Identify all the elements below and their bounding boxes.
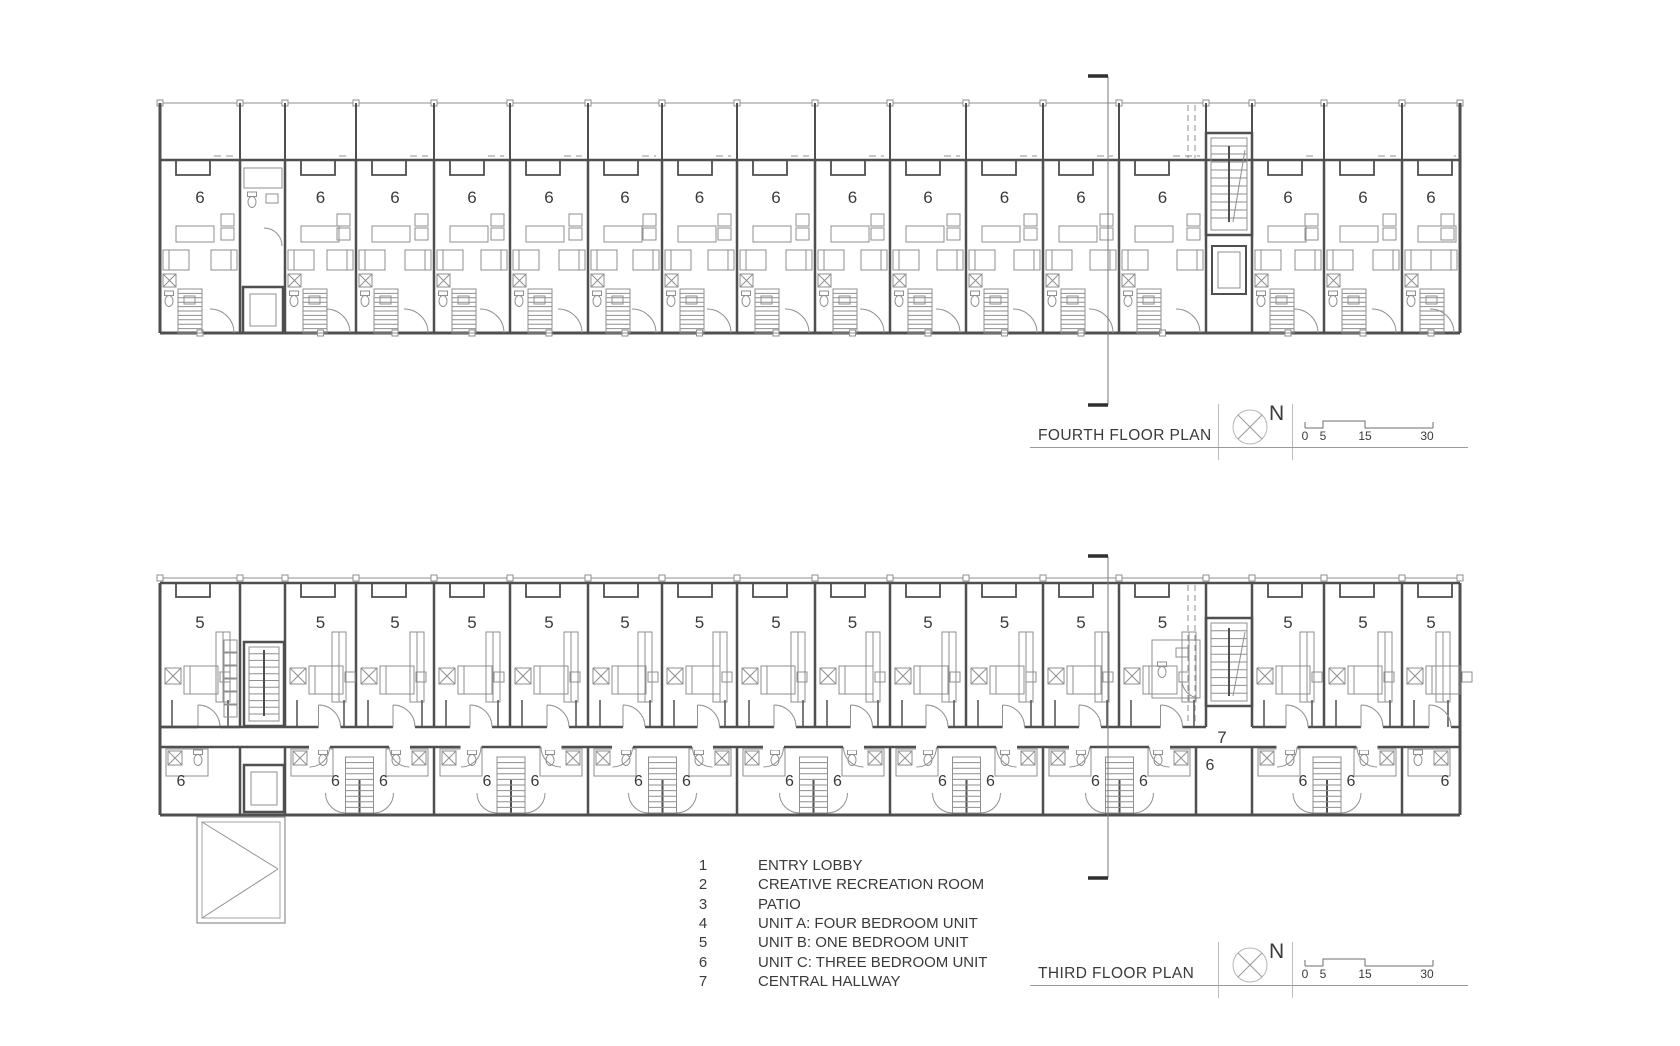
legend-number: 5 [694, 934, 712, 951]
legend-label: CENTRAL HALLWAY [758, 973, 901, 990]
unit-label: 5 [1426, 613, 1435, 632]
unit-label: 6 [331, 773, 340, 790]
unit-label: 6 [390, 188, 399, 207]
unit-label: 6 [1206, 757, 1215, 774]
unit-label: 5 [467, 613, 476, 632]
unit-label: 5 [771, 613, 780, 632]
legend-label: UNIT B: ONE BEDROOM UNIT [758, 934, 969, 951]
unit-label: 6 [1158, 188, 1167, 207]
scale-tick: 15 [1355, 429, 1375, 443]
north-label: N [1269, 402, 1284, 426]
unit-label: 5 [1158, 613, 1167, 632]
unit-label: 5 [1283, 613, 1292, 632]
unit-label: 5 [923, 613, 932, 632]
unit-label: 6 [833, 773, 842, 790]
legend-number: 2 [694, 876, 712, 893]
north-label: N [1269, 940, 1284, 964]
unit-label: 6 [986, 773, 995, 790]
unit-label: 6 [771, 188, 780, 207]
unit-label: 5 [1000, 613, 1009, 632]
scale-tick: 30 [1417, 967, 1437, 981]
unit-label: 5 [195, 613, 204, 632]
unit-label: 6 [1358, 188, 1367, 207]
legend-number: 3 [694, 896, 712, 913]
unit-label: 6 [1441, 773, 1450, 790]
unit-label: 6 [938, 773, 947, 790]
third-floor-title: THIRD FLOOR PLAN [1038, 965, 1194, 983]
drawing-sheet: 6666666666666666555555555555555576666666… [0, 0, 1680, 1046]
unit-label: 5 [695, 613, 704, 632]
unit-label: 6 [620, 188, 629, 207]
titleblock-divider [1292, 404, 1293, 460]
hallway-label: 7 [1217, 728, 1226, 747]
unit-label: 6 [923, 188, 932, 207]
unit-label: 6 [531, 773, 540, 790]
titleblock-divider [1292, 942, 1293, 998]
unit-label: 5 [1358, 613, 1367, 632]
legend-number: 6 [694, 954, 712, 971]
unit-label: 6 [379, 773, 388, 790]
unit-label: 6 [1139, 773, 1148, 790]
scale-tick: 0 [1295, 967, 1315, 981]
unit-label: 6 [1076, 188, 1085, 207]
scale-bar [1300, 416, 1440, 430]
titleblock-divider [1218, 404, 1219, 460]
legend-number: 4 [694, 915, 712, 932]
unit-label: 6 [1299, 773, 1308, 790]
unit-label: 5 [1076, 613, 1085, 632]
unit-label: 5 [316, 613, 325, 632]
fourth-floor-title: FOURTH FLOOR PLAN [1038, 427, 1212, 445]
scale-tick: 30 [1417, 429, 1437, 443]
legend-label: CREATIVE RECREATION ROOM [758, 876, 984, 893]
titleblock-divider [1218, 942, 1219, 998]
unit-label: 6 [695, 188, 704, 207]
scale-bar [1300, 954, 1440, 968]
scale-tick: 0 [1295, 429, 1315, 443]
fourth-floor-plan-drawing: 6666666666666666 [157, 76, 1463, 405]
legend-label: ENTRY LOBBY [758, 857, 863, 874]
unit-label: 6 [634, 773, 643, 790]
legend-label: PATIO [758, 896, 801, 913]
unit-label: 6 [848, 188, 857, 207]
unit-label: 5 [620, 613, 629, 632]
legend-label: UNIT A: FOUR BEDROOM UNIT [758, 915, 978, 932]
legend-number: 7 [694, 973, 712, 990]
scale-tick: 15 [1355, 967, 1375, 981]
unit-label: 6 [1091, 773, 1100, 790]
unit-label: 6 [177, 773, 186, 790]
unit-label: 6 [682, 773, 691, 790]
unit-label: 6 [483, 773, 492, 790]
unit-label: 5 [390, 613, 399, 632]
scale-tick: 5 [1313, 967, 1333, 981]
unit-label: 6 [785, 773, 794, 790]
unit-label: 5 [544, 613, 553, 632]
legend-label: UNIT C: THREE BEDROOM UNIT [758, 954, 987, 971]
unit-label: 6 [195, 188, 204, 207]
scale-tick: 5 [1313, 429, 1333, 443]
legend-number: 1 [694, 857, 712, 874]
unit-label: 6 [1000, 188, 1009, 207]
unit-label: 6 [316, 188, 325, 207]
unit-label: 6 [1347, 773, 1356, 790]
unit-label: 5 [848, 613, 857, 632]
unit-label: 6 [544, 188, 553, 207]
unit-label: 6 [1426, 188, 1435, 207]
unit-label: 6 [467, 188, 476, 207]
unit-label: 6 [1283, 188, 1292, 207]
